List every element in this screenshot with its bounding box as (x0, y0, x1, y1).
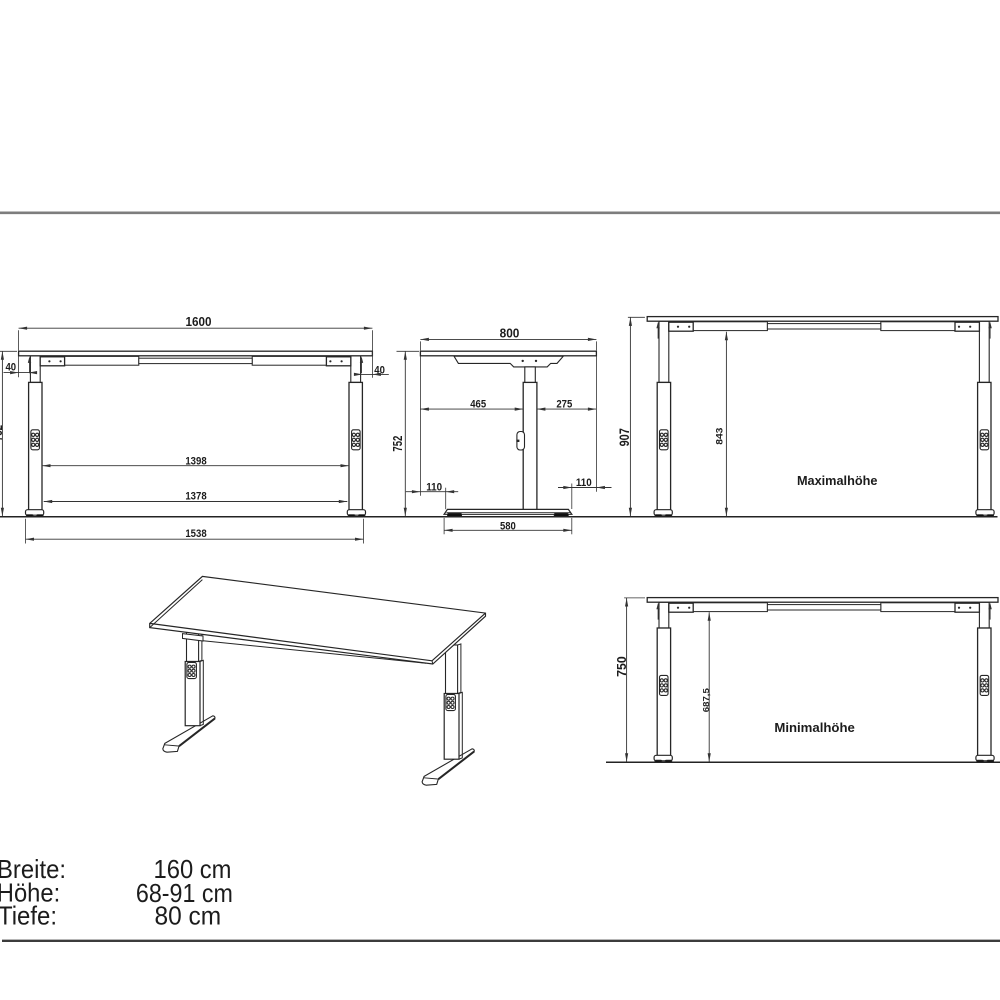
svg-text:275: 275 (556, 399, 572, 411)
svg-text:Maximalhöhe: Maximalhöhe (797, 473, 878, 488)
svg-text:1378: 1378 (185, 491, 206, 503)
svg-text:687,5: 687,5 (701, 688, 711, 712)
svg-text:752: 752 (0, 425, 5, 441)
svg-text:1538: 1538 (185, 528, 206, 540)
svg-text:40: 40 (6, 361, 17, 373)
svg-text:110: 110 (426, 481, 442, 493)
svg-text:907: 907 (617, 428, 632, 446)
svg-text:80 cm: 80 cm (155, 901, 222, 931)
svg-text:1398: 1398 (185, 455, 206, 467)
svg-text:843: 843 (715, 428, 725, 445)
svg-text:750: 750 (615, 656, 629, 677)
svg-text:Minimalhöhe: Minimalhöhe (774, 720, 855, 735)
svg-text:Tiefe:: Tiefe: (0, 901, 57, 931)
svg-text:752: 752 (390, 436, 405, 452)
svg-text:110: 110 (576, 477, 592, 489)
svg-text:1600: 1600 (186, 315, 212, 329)
svg-text:465: 465 (470, 399, 486, 411)
svg-text:40: 40 (374, 364, 385, 376)
svg-text:800: 800 (500, 326, 520, 340)
svg-text:580: 580 (500, 521, 516, 533)
